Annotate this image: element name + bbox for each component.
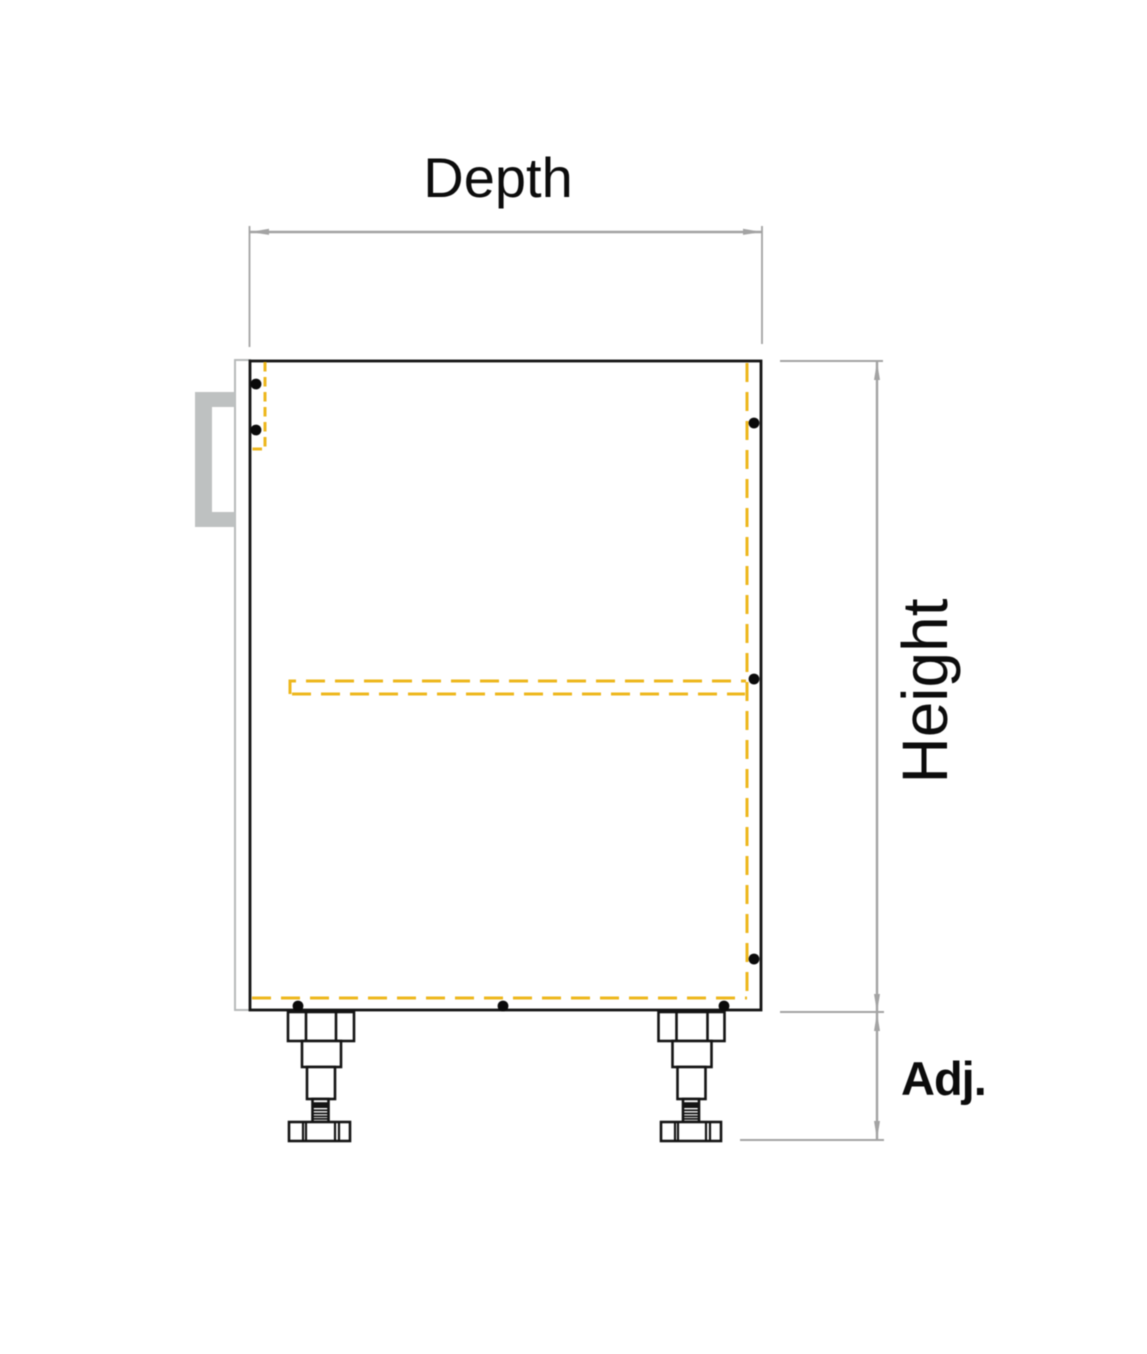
svg-text:Adj.: Adj. bbox=[901, 1052, 986, 1105]
svg-text:Height: Height bbox=[889, 598, 961, 783]
svg-text:Depth: Depth bbox=[423, 146, 572, 209]
